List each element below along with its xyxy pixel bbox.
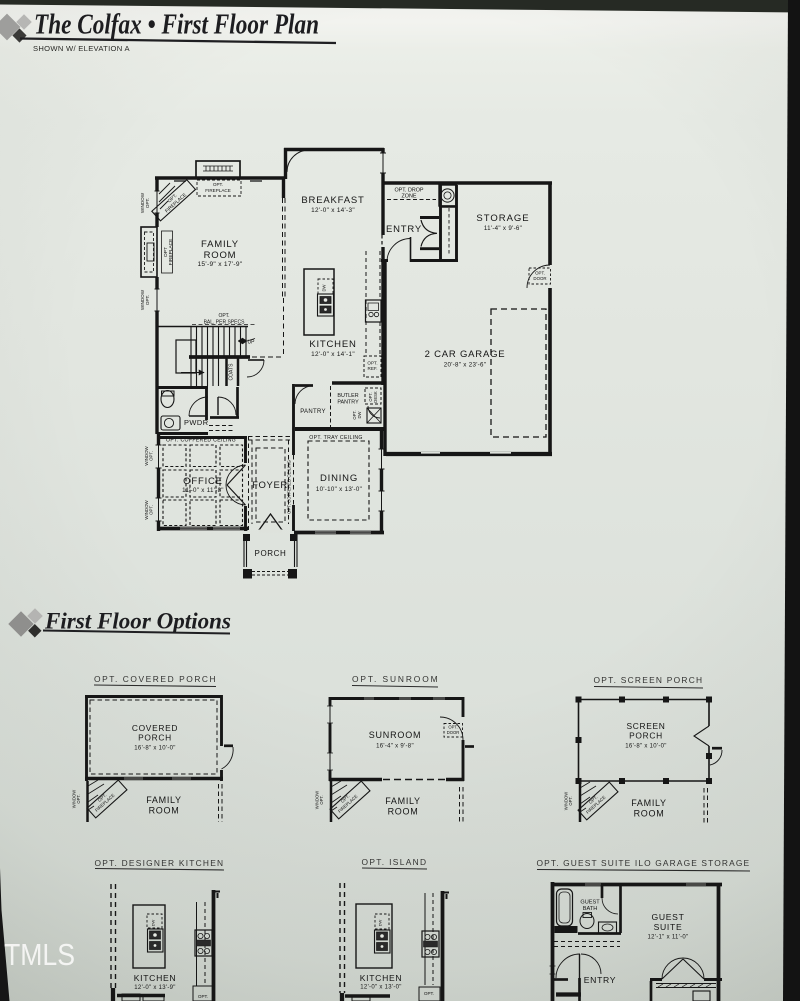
svg-text:SUITE: SUITE — [654, 922, 683, 932]
svg-text:ENTRY: ENTRY — [584, 975, 616, 985]
svg-text:KITCHEN: KITCHEN — [134, 973, 177, 983]
svg-text:OPT. COFFERED CEILING: OPT. COFFERED CEILING — [287, 459, 292, 513]
svg-text:WINDOW: WINDOW — [144, 500, 149, 520]
svg-text:12'-0" x 14'-1": 12'-0" x 14'-1" — [311, 351, 355, 358]
svg-text:15'-9" x 17'-9": 15'-9" x 17'-9" — [197, 261, 242, 268]
svg-text:KITCHEN: KITCHEN — [309, 339, 356, 350]
svg-text:12'-0" x 13'-9": 12'-0" x 13'-9" — [134, 985, 175, 991]
svg-text:DESK: DESK — [373, 391, 378, 403]
svg-text:ROOM: ROOM — [149, 806, 180, 816]
svg-text:DW: DW — [378, 919, 383, 926]
svg-text:DW: DW — [151, 919, 156, 926]
svg-text:OPT. GUEST SUITE ILO GARAGE ST: OPT. GUEST SUITE ILO GARAGE STORAGE — [537, 858, 750, 868]
svg-text:SHOWN W/ ELEVATION A: SHOWN W/ ELEVATION A — [33, 44, 130, 53]
svg-text:WINDOW: WINDOW — [140, 289, 145, 310]
svg-text:12'-0" x 13'-0": 12'-0" x 13'-0" — [360, 985, 401, 991]
svg-text:OPT.: OPT. — [568, 796, 573, 805]
svg-text:PANTRY: PANTRY — [337, 400, 359, 406]
svg-text:UP: UP — [248, 340, 256, 346]
svg-text:16'-8" x 10'-0": 16'-8" x 10'-0" — [625, 744, 666, 750]
svg-text:WINDOW: WINDOW — [564, 792, 569, 810]
svg-text:KITCHEN: KITCHEN — [360, 973, 403, 983]
svg-text:DINING: DINING — [320, 473, 358, 484]
svg-text:COATS: COATS — [229, 363, 235, 381]
svg-text:PANTRY: PANTRY — [300, 409, 326, 415]
svg-text:PORCH: PORCH — [138, 733, 172, 743]
svg-text:ROOM: ROOM — [634, 809, 665, 819]
svg-text:GUEST: GUEST — [651, 912, 684, 922]
svg-text:TMLS: TMLS — [4, 937, 75, 972]
svg-text:ROOM: ROOM — [388, 807, 419, 817]
svg-text:WINDOW: WINDOW — [144, 446, 149, 466]
svg-text:BAL. PER SPECS: BAL. PER SPECS — [204, 320, 246, 326]
svg-text:The Colfax • First Floor Plan: The Colfax • First Floor Plan — [34, 10, 319, 41]
svg-text:12'-0" x 14'-3": 12'-0" x 14'-3" — [311, 207, 355, 214]
svg-text:OPT.: OPT. — [145, 295, 150, 305]
svg-text:OPT. ISLAND: OPT. ISLAND — [362, 857, 427, 867]
svg-text:OPT.: OPT. — [149, 505, 154, 515]
svg-text:11'-0" x 11'-8": 11'-0" x 11'-8" — [182, 487, 224, 494]
svg-text:ROOM: ROOM — [204, 250, 237, 261]
svg-text:FIREPLACE: FIREPLACE — [168, 239, 174, 266]
svg-text:OPT.: OPT. — [367, 361, 377, 366]
svg-text:BATH: BATH — [583, 906, 598, 912]
svg-text:COVERED: COVERED — [132, 723, 178, 733]
svg-text:OPT.: OPT. — [535, 271, 545, 276]
svg-text:BUTLER: BUTLER — [337, 393, 358, 399]
svg-text:OPT.: OPT. — [448, 725, 457, 730]
svg-text:OPT. COFFERED CEILING: OPT. COFFERED CEILING — [166, 438, 236, 444]
svg-text:FIREPLACE: FIREPLACE — [205, 188, 231, 193]
svg-text:ZONE: ZONE — [402, 194, 417, 200]
svg-text:BREAKFAST: BREAKFAST — [301, 195, 364, 206]
svg-text:PORCH: PORCH — [255, 549, 287, 558]
svg-text:OPT.: OPT. — [213, 182, 223, 187]
svg-text:FOYER: FOYER — [252, 480, 288, 491]
svg-text:WINDOW: WINDOW — [315, 791, 320, 809]
svg-text:OFFICE: OFFICE — [183, 476, 223, 487]
svg-text:OPT. TRAY CEILING: OPT. TRAY CEILING — [309, 435, 363, 441]
svg-text:12'-1" x 11'-0": 12'-1" x 11'-0" — [648, 935, 689, 941]
svg-text:DW: DW — [322, 284, 327, 291]
svg-text:16'-4" x 9'-8": 16'-4" x 9'-8" — [376, 744, 414, 750]
svg-text:20'-8" x 23'-6": 20'-8" x 23'-6" — [444, 362, 487, 369]
svg-text:FAMILY: FAMILY — [385, 796, 421, 806]
svg-text:OPT. SCREEN PORCH: OPT. SCREEN PORCH — [594, 675, 703, 685]
svg-text:OPT.: OPT. — [198, 994, 208, 999]
svg-text:OPT. COVERED PORCH: OPT. COVERED PORCH — [94, 674, 216, 684]
svg-text:DOOR: DOOR — [447, 730, 460, 735]
svg-text:GUEST: GUEST — [580, 900, 600, 906]
svg-text:OPT.: OPT. — [149, 451, 154, 461]
svg-text:WINDOW: WINDOW — [72, 790, 77, 808]
svg-text:PWDR: PWDR — [184, 418, 209, 427]
svg-text:DOOR: DOOR — [533, 276, 546, 281]
svg-text:OPT.: OPT. — [319, 795, 324, 804]
svg-text:SUNROOM: SUNROOM — [369, 730, 422, 740]
svg-text:FAMILY: FAMILY — [201, 239, 239, 250]
svg-text:STORAGE: STORAGE — [476, 213, 529, 224]
svg-text:11'-4" x 9'-6": 11'-4" x 9'-6" — [484, 225, 522, 232]
svg-text:REF.: REF. — [368, 366, 378, 371]
svg-text:OPT.: OPT. — [145, 198, 150, 208]
svg-text:WINDOW: WINDOW — [140, 192, 145, 213]
svg-text:OPT.: OPT. — [76, 794, 81, 803]
svg-text:SCREEN: SCREEN — [626, 721, 665, 731]
svg-text:FAMILY: FAMILY — [146, 795, 182, 805]
svg-text:FAMILY: FAMILY — [631, 798, 667, 808]
svg-text:OPT. DESIGNER KITCHEN: OPT. DESIGNER KITCHEN — [95, 858, 224, 868]
svg-text:OPT.: OPT. — [218, 313, 229, 319]
svg-text:2 CAR GARAGE: 2 CAR GARAGE — [425, 349, 506, 360]
svg-text:ENTRY: ENTRY — [386, 224, 422, 235]
svg-text:PORCH: PORCH — [629, 731, 663, 741]
svg-text:16'-8" x 10'-0": 16'-8" x 10'-0" — [134, 746, 175, 752]
svg-text:DW: DW — [357, 411, 362, 418]
svg-text:OPT. SUNROOM: OPT. SUNROOM — [352, 674, 438, 684]
svg-text:OPT.: OPT. — [424, 991, 434, 996]
svg-text:10'-10" x 13'-0": 10'-10" x 13'-0" — [316, 486, 362, 493]
